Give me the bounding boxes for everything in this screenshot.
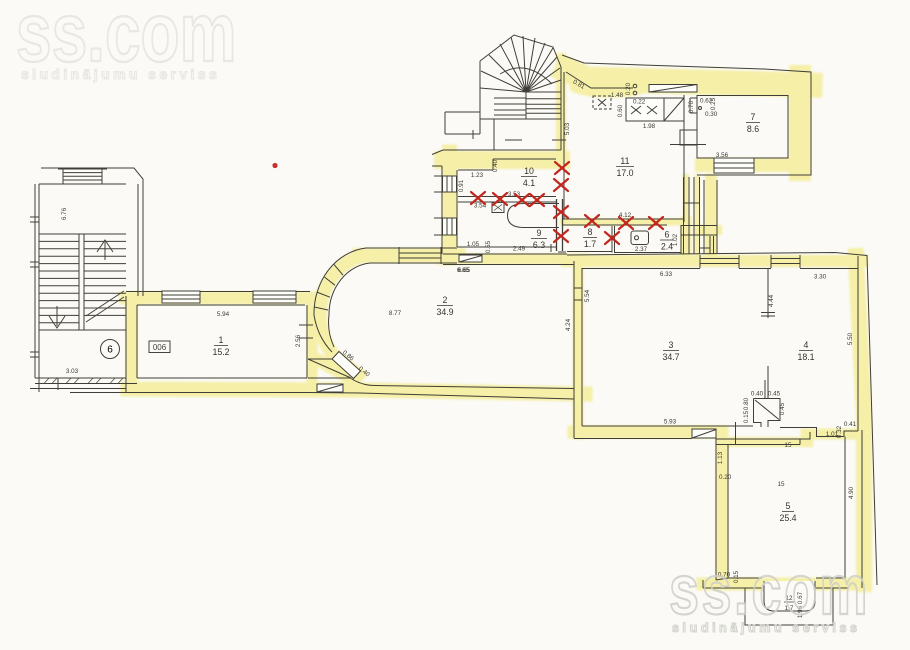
svg-text:5.94: 5.94	[217, 311, 230, 318]
svg-text:1.48: 1.48	[611, 92, 624, 99]
svg-text:6: 6	[107, 345, 113, 356]
svg-text:0.41: 0.41	[844, 421, 857, 428]
svg-text:ss.com: ss.com	[669, 551, 870, 629]
svg-text:9: 9	[537, 228, 542, 238]
svg-text:0.22: 0.22	[633, 99, 646, 106]
svg-text:0.20: 0.20	[719, 474, 732, 481]
svg-text:6.3: 6.3	[533, 240, 545, 250]
svg-text:0.40: 0.40	[492, 159, 499, 172]
svg-text:0.30: 0.30	[705, 111, 718, 118]
svg-text:6: 6	[665, 230, 670, 240]
svg-text:10: 10	[524, 166, 534, 176]
svg-text:1.7: 1.7	[584, 239, 596, 249]
svg-text:1.98: 1.98	[643, 123, 656, 130]
svg-text:0.80: 0.80	[743, 397, 750, 410]
svg-text:0.25: 0.25	[710, 97, 717, 110]
svg-text:2.49: 2.49	[513, 246, 526, 253]
svg-text:0.15: 0.15	[743, 410, 750, 423]
svg-text:1.23: 1.23	[471, 172, 484, 179]
svg-text:sludinājumu serviss: sludinājumu serviss	[672, 621, 861, 635]
svg-text:6.76: 6.76	[61, 207, 68, 220]
svg-text:4.90: 4.90	[848, 486, 855, 499]
svg-text:8.6: 8.6	[747, 124, 759, 134]
svg-text:34.7: 34.7	[662, 352, 679, 362]
svg-text:1.05: 1.05	[467, 241, 480, 248]
svg-text:5.54: 5.54	[584, 289, 591, 302]
svg-text:8.77: 8.77	[389, 310, 402, 317]
svg-text:8: 8	[588, 227, 593, 237]
svg-text:18.1: 18.1	[797, 352, 814, 362]
svg-text:15: 15	[777, 481, 785, 488]
svg-text:sludinājumu serviss: sludinājumu serviss	[21, 66, 220, 82]
svg-text:3.03: 3.03	[66, 368, 79, 375]
svg-text:25.4: 25.4	[779, 513, 796, 523]
svg-text:5: 5	[786, 501, 791, 511]
svg-text:17.0: 17.0	[616, 168, 633, 178]
svg-text:3.30: 3.30	[814, 274, 827, 281]
svg-text:0.60: 0.60	[617, 104, 624, 117]
svg-text:0.70: 0.70	[688, 100, 695, 113]
svg-text:5.50: 5.50	[847, 332, 854, 345]
svg-text:15.2: 15.2	[212, 347, 229, 357]
svg-text:006: 006	[153, 343, 167, 352]
svg-text:5.93: 5.93	[664, 419, 677, 426]
svg-text:4: 4	[804, 340, 809, 350]
svg-text:0.32: 0.32	[836, 425, 843, 438]
svg-text:2: 2	[443, 295, 448, 305]
svg-text:6.65: 6.65	[458, 267, 471, 274]
svg-text:0.45: 0.45	[768, 391, 781, 398]
svg-text:4.24: 4.24	[565, 318, 572, 331]
svg-text:2.37: 2.37	[635, 246, 648, 253]
svg-text:11: 11	[620, 156, 629, 166]
svg-text:5.03: 5.03	[564, 122, 571, 135]
svg-text:1: 1	[219, 335, 224, 345]
svg-text:0.40: 0.40	[751, 391, 764, 398]
svg-text:0.20: 0.20	[625, 82, 632, 95]
svg-text:4.1: 4.1	[523, 178, 535, 188]
svg-text:34.9: 34.9	[436, 307, 453, 317]
svg-text:2.56: 2.56	[295, 334, 302, 347]
svg-text:15: 15	[784, 442, 792, 449]
svg-text:0.45: 0.45	[779, 402, 786, 415]
svg-text:3: 3	[669, 340, 674, 350]
svg-text:1.02: 1.02	[672, 233, 679, 246]
svg-text:7: 7	[751, 112, 756, 122]
svg-text:3.56: 3.56	[716, 152, 729, 159]
svg-text:6.33: 6.33	[660, 271, 673, 278]
svg-text:0.55: 0.55	[485, 240, 492, 253]
svg-text:1.13: 1.13	[717, 451, 724, 464]
svg-text:4.44: 4.44	[768, 294, 775, 307]
svg-text:0.91: 0.91	[458, 179, 465, 192]
